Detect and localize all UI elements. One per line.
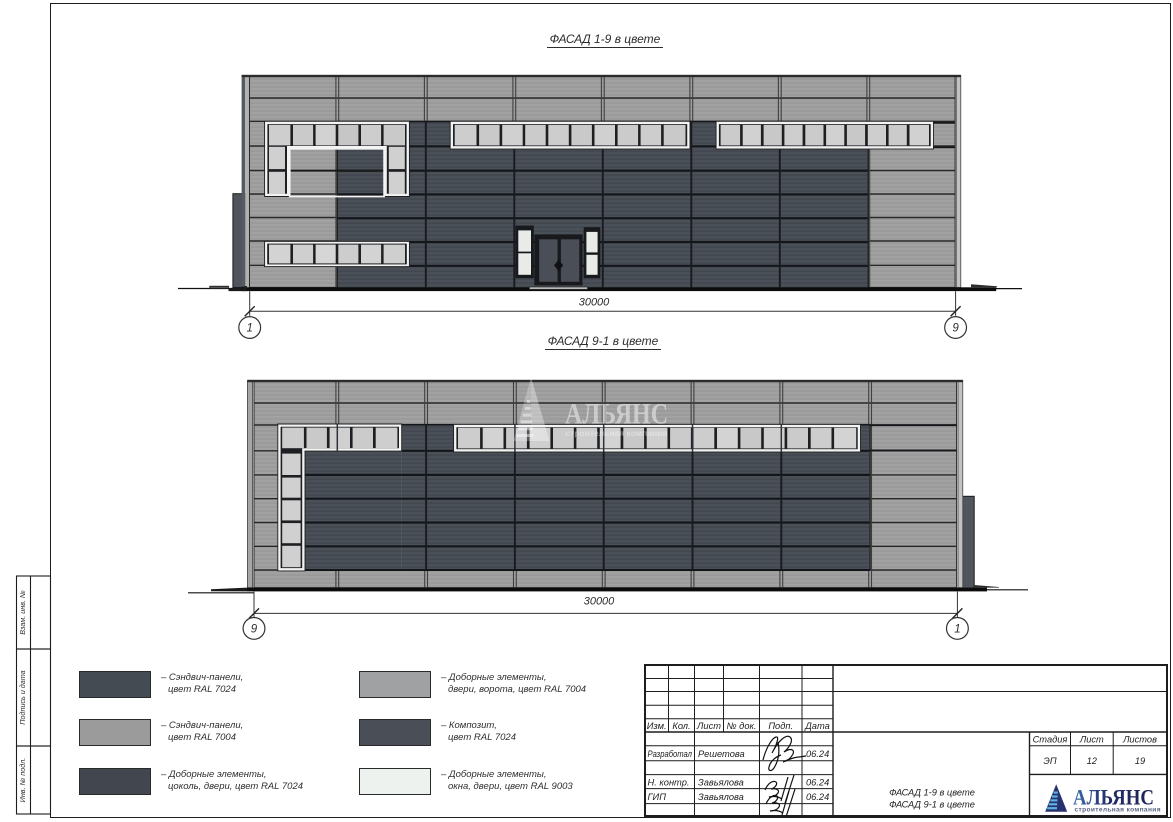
svg-text:Завьялова: Завьялова [698,792,744,802]
svg-text:19: 19 [1135,756,1145,766]
svg-text:№ док.: № док. [727,721,757,731]
svg-text:06.24: 06.24 [806,792,829,802]
svg-text:12: 12 [1087,756,1098,766]
svg-text:06.24: 06.24 [806,749,829,759]
svg-text:Стадия: Стадия [1033,735,1068,745]
svg-text:Лист: Лист [1079,735,1104,745]
svg-text:Решетова: Решетова [698,749,745,759]
svg-text:30000: 30000 [579,297,610,309]
svg-text:ФАСАД 9-1 в цвете: ФАСАД 9-1 в цвете [889,800,975,810]
svg-text:Инв. № подл.: Инв. № подл. [18,758,27,803]
svg-text:Изм.: Изм. [647,721,667,731]
svg-text:06.24: 06.24 [806,777,829,787]
svg-text:9: 9 [251,624,258,636]
svg-text:ЭП: ЭП [1043,756,1056,766]
svg-text:Дата: Дата [804,721,830,731]
svg-text:Кол.: Кол. [672,721,690,731]
svg-text:1: 1 [246,323,252,335]
svg-text:Подп.: Подп. [768,721,793,731]
svg-text:30000: 30000 [584,596,615,608]
svg-text:строительная компания: строительная компания [1075,806,1161,813]
svg-text:строительная компания: строительная компания [565,429,667,438]
svg-text:ФАСАД 1-9 в цвете: ФАСАД 1-9 в цвете [889,788,975,798]
svg-text:АЛЬЯНС: АЛЬЯНС [565,398,668,431]
svg-text:9: 9 [952,323,959,335]
svg-text:Завьялова: Завьялова [698,777,744,787]
svg-text:Листов: Листов [1122,735,1157,745]
svg-text:1: 1 [954,624,960,636]
svg-text:Н. контр.: Н. контр. [648,777,690,787]
svg-text:ГИП: ГИП [648,792,667,802]
svg-text:Лист: Лист [696,721,721,731]
svg-text:Взам. инв. №: Взам. инв. № [18,590,27,635]
svg-text:Разработал: Разработал [648,749,693,759]
svg-text:Подпись и дата: Подпись и дата [18,670,27,724]
